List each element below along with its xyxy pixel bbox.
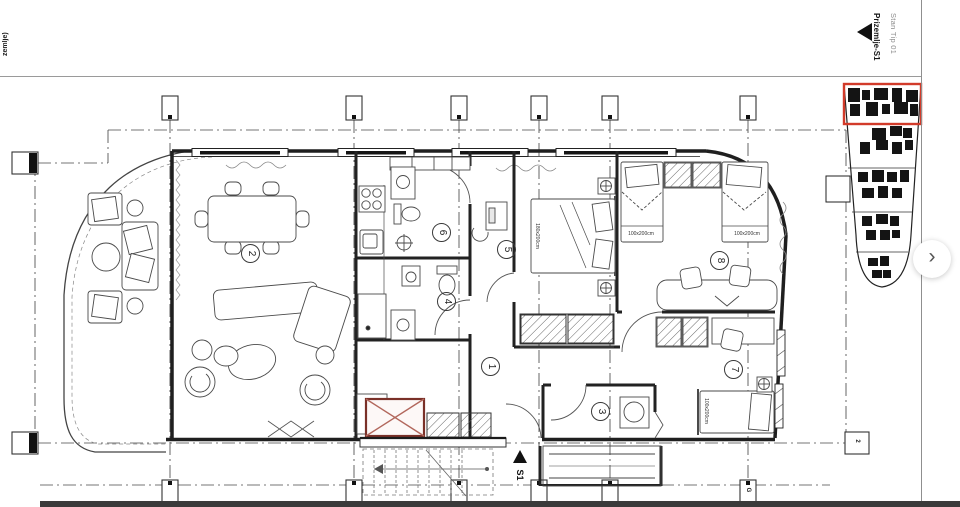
laundry	[620, 397, 649, 428]
bed-size-single-a: 100x200cm	[611, 231, 671, 237]
bed-size-single-c: 100x200cm	[703, 381, 709, 441]
shaft-box	[366, 399, 424, 436]
room-number-3: 3	[591, 402, 610, 421]
bed-size-master: 180x200cm	[534, 206, 540, 266]
master-bedroom	[472, 178, 615, 296]
stairs	[363, 449, 493, 496]
room-number-1: 1	[481, 357, 500, 376]
floor-arrow-icon	[857, 23, 872, 41]
room-number-6: 6	[432, 223, 451, 242]
floor-name-label: Prizemlje-S1	[872, 13, 881, 67]
room-number-7: 7	[724, 360, 743, 379]
room-number-2: 2	[241, 244, 260, 263]
terrace-furniture	[88, 193, 158, 323]
room-number-4: 4	[437, 292, 456, 311]
chevron-right-icon: ›	[929, 245, 936, 268]
room-number-5: 5	[497, 240, 516, 259]
hall-wardrobe	[520, 314, 614, 347]
minimap	[826, 84, 921, 287]
bedroom7	[656, 317, 774, 435]
grid-letter-g: G	[745, 480, 751, 500]
section-marker-label: S1	[515, 460, 525, 490]
sofa-set	[185, 282, 352, 405]
bathroom-fixtures	[391, 167, 420, 252]
carousel-next-button[interactable]: ›	[913, 240, 951, 278]
bottom-bar	[40, 501, 960, 507]
grid-letter-2: 2	[854, 431, 860, 451]
plan-type-label: Stan Tip 01	[889, 13, 898, 63]
side-margin-label: zemlje)	[2, 10, 9, 56]
room-number-8: 8	[710, 251, 729, 270]
screenshot-canvas: zemlje) Stan Tip 01 Prizemlje-S1 1 2 3 4…	[0, 0, 960, 507]
bed-size-single-b: 100x200cm	[717, 231, 777, 237]
top-divider-line	[0, 76, 921, 77]
